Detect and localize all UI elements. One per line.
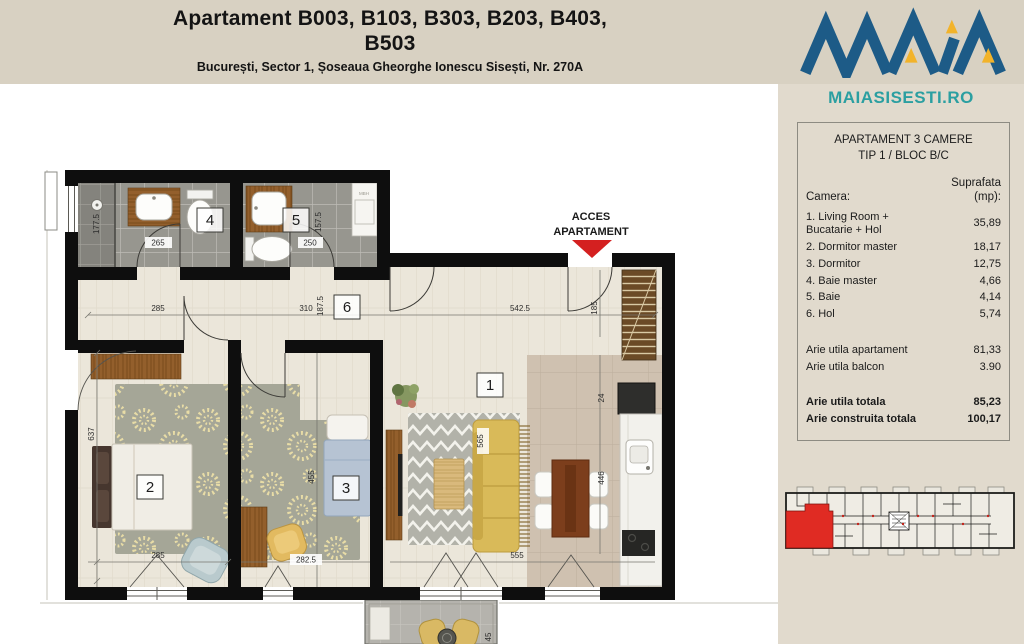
svg-text:MBH: MBH — [359, 191, 369, 196]
svg-text:285: 285 — [151, 304, 165, 313]
table-row: Arie construita totala100,17 — [806, 413, 1001, 427]
page-title-line1: Apartament B003, B103, B303, B203, B403, — [0, 7, 780, 32]
svg-text:157.5: 157.5 — [314, 211, 323, 232]
row-label: Arie utila apartament — [806, 344, 936, 358]
access-label: ACCES APARTAMENT — [553, 211, 629, 258]
row-label: 5. Baie — [806, 291, 936, 305]
fridge-icon — [618, 383, 655, 414]
stair-core — [889, 512, 909, 530]
kitchen — [618, 383, 662, 586]
svg-text:565: 565 — [476, 434, 485, 448]
bed-pillow — [327, 415, 368, 440]
row-value: 4,66 — [980, 275, 1001, 289]
svg-text:1: 1 — [486, 377, 494, 394]
maia-logo-icon — [800, 6, 1006, 78]
row-value: 12,75 — [973, 258, 1001, 272]
tv-icon — [398, 454, 403, 516]
svg-text:ACCES: ACCES — [572, 211, 611, 223]
row-label: 4. Baie master — [806, 275, 936, 289]
row-value: 18,17 — [973, 241, 1001, 255]
address-subtitle: București, Sector 1, Șoseaua Gheorghe Io… — [0, 60, 780, 74]
building-overview-plan — [783, 486, 1021, 561]
panel-totals: Arie utila totala85,23Arie construita to… — [806, 396, 1001, 427]
cooktop-icon — [622, 530, 655, 556]
row-value: 81,33 — [973, 344, 1001, 358]
svg-text:542.5: 542.5 — [510, 304, 531, 313]
panel-rows: 1. Living Room + Bucatarie + Hol35,892. … — [806, 211, 1001, 322]
svg-text:285: 285 — [151, 551, 165, 560]
access-arrow-icon — [572, 240, 612, 258]
svg-text:310: 310 — [299, 304, 313, 313]
svg-text:250: 250 — [303, 239, 317, 248]
table-row: 4. Baie master4,66 — [806, 275, 1001, 289]
balcony-table — [438, 629, 456, 644]
site-url-label: MAIASISESTI.RO — [780, 88, 1022, 108]
table-row: Arie utila balcon3.90 — [806, 361, 1001, 375]
balcony-bench — [370, 607, 390, 640]
table-row: 5. Baie4,14 — [806, 291, 1001, 305]
desk — [240, 507, 267, 567]
row-label: Arie utila totala — [806, 396, 936, 410]
table-row: 6. Hol5,74 — [806, 308, 1001, 322]
row-value: 100,17 — [967, 413, 1001, 427]
row-value: 85,23 — [973, 396, 1001, 410]
svg-text:5: 5 — [292, 212, 300, 229]
panel-title-line1: APARTAMENT 3 CAMERE — [806, 133, 1001, 147]
svg-text:637: 637 — [87, 427, 96, 441]
svg-text:24: 24 — [597, 393, 606, 402]
table-row: 1. Living Room + Bucatarie + Hol35,89 — [806, 211, 1001, 239]
svg-text:265: 265 — [151, 239, 165, 248]
apartment-info-panel: APARTAMENT 3 CAMERE TIP 1 / BLOC B/C Cam… — [797, 122, 1010, 441]
svg-text:4: 4 — [206, 212, 214, 229]
svg-text:3: 3 — [342, 480, 350, 497]
svg-text:45: 45 — [484, 632, 493, 641]
table-row: 3. Dormitor12,75 — [806, 258, 1001, 272]
wardrobe — [91, 354, 181, 379]
header-title-block: Apartament B003, B103, B303, B203, B403,… — [0, 7, 780, 74]
panel-summary: Arie utila apartament81,33Arie utila bal… — [806, 344, 1001, 375]
svg-text:446: 446 — [597, 471, 606, 485]
svg-text:177.5: 177.5 — [92, 213, 101, 234]
row-label: 3. Dormitor — [806, 258, 936, 272]
sofa-fringe — [519, 424, 530, 548]
svg-text:2: 2 — [146, 479, 154, 496]
toilet-tank — [187, 190, 213, 199]
svg-text:APARTAMENT: APARTAMENT — [553, 226, 629, 238]
column-room: Camera: — [806, 190, 850, 204]
table-row: Arie utila apartament81,33 — [806, 344, 1001, 358]
coffee-table — [434, 459, 464, 509]
balcony — [365, 600, 497, 644]
svg-text:185: 185 — [590, 301, 599, 315]
toilet-icon — [252, 237, 292, 262]
row-value: 3.90 — [980, 361, 1001, 375]
row-label: Arie construita totala — [806, 413, 936, 427]
page-title-line2: B503 — [0, 32, 780, 57]
table-row: 2. Dormitor master18,17 — [806, 241, 1001, 255]
row-value: 4,14 — [980, 291, 1001, 305]
panel-column-headers: Camera: Suprafata (mp): — [806, 176, 1001, 205]
flyer-page: Apartament B003, B103, B303, B203, B403,… — [0, 0, 1024, 644]
svg-text:282.5: 282.5 — [296, 556, 317, 565]
svg-text:6: 6 — [343, 299, 351, 316]
row-value: 5,74 — [980, 308, 1001, 322]
floorplan-svg: MBH — [0, 84, 780, 644]
row-label: Arie utila balcon — [806, 361, 936, 375]
row-label: 1. Living Room + Bucatarie + Hol — [806, 211, 936, 239]
exterior-window — [45, 172, 57, 230]
row-label: 2. Dormitor master — [806, 241, 936, 255]
row-value: 35,89 — [973, 217, 1001, 231]
table-row: Arie utila totala85,23 — [806, 396, 1001, 410]
svg-text:555: 555 — [510, 551, 524, 560]
row-label: 6. Hol — [806, 308, 936, 322]
svg-text:455: 455 — [307, 470, 316, 484]
panel-title-line2: TIP 1 / BLOC B/C — [806, 149, 1001, 163]
column-area: Suprafata (mp): — [951, 176, 1001, 205]
svg-text:187.5: 187.5 — [316, 295, 325, 316]
